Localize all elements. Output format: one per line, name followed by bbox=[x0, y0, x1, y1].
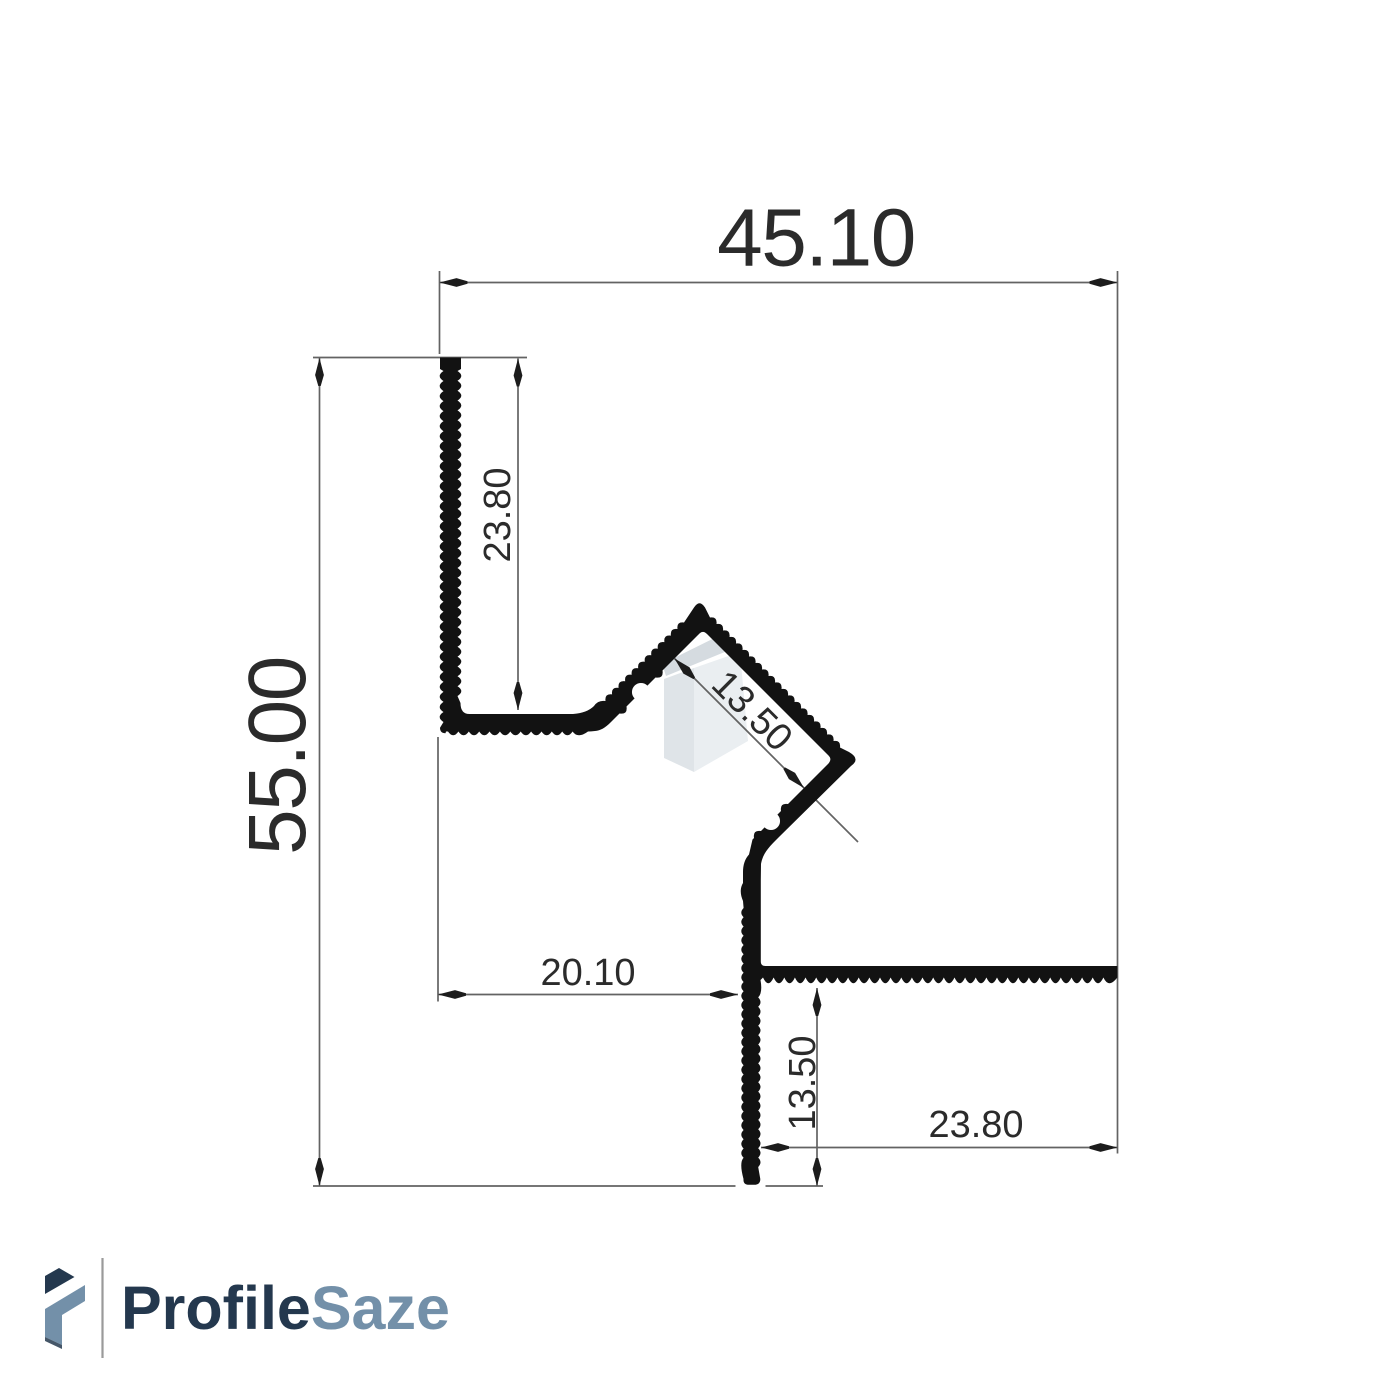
svg-text:23.80: 23.80 bbox=[928, 1104, 1023, 1146]
svg-text:20.10: 20.10 bbox=[540, 952, 635, 994]
svg-text:45.10: 45.10 bbox=[717, 193, 915, 284]
svg-text:ProfileSaze: ProfileSaze bbox=[121, 1274, 450, 1342]
svg-text:13.50: 13.50 bbox=[782, 1035, 824, 1130]
svg-text:23.80: 23.80 bbox=[477, 467, 519, 562]
svg-text:55.00: 55.00 bbox=[232, 657, 323, 855]
